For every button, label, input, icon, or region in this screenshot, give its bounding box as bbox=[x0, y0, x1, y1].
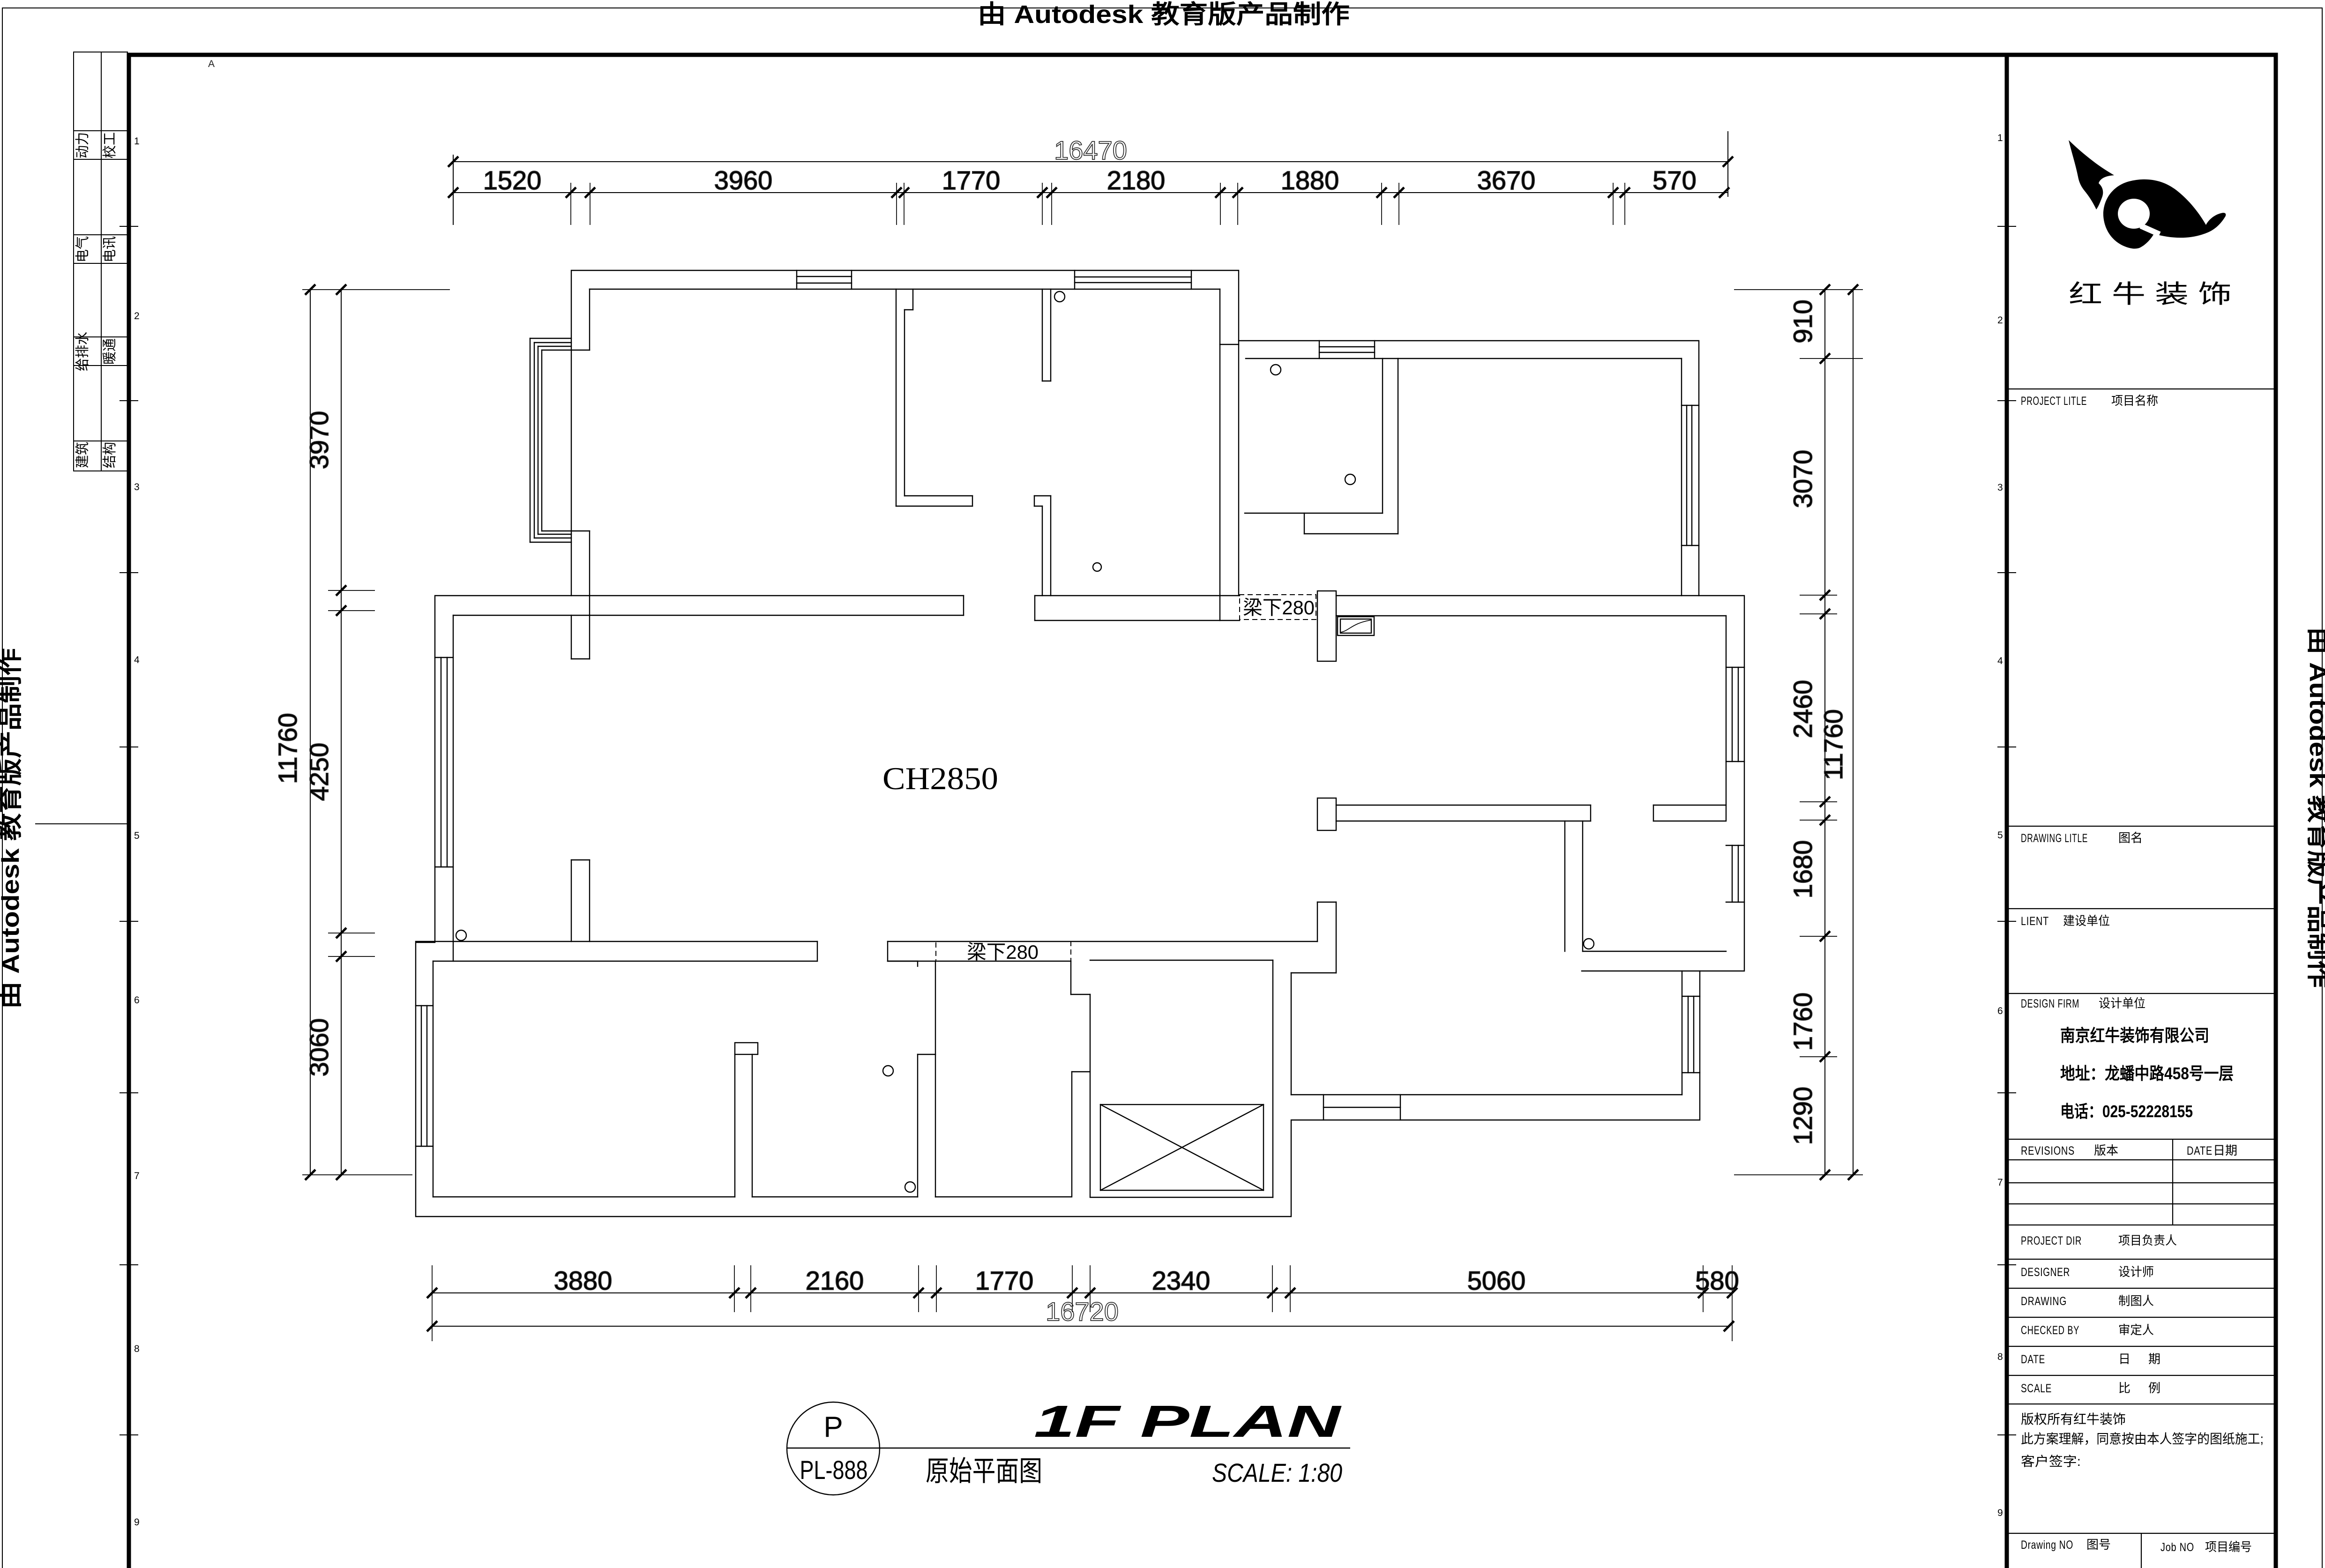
svg-text:2180: 2180 bbox=[1107, 165, 1166, 195]
svg-text:建设单位: 建设单位 bbox=[2063, 914, 2110, 928]
svg-text:制图人: 制图人 bbox=[2118, 1294, 2154, 1308]
svg-text:给排水: 给排水 bbox=[75, 332, 90, 371]
svg-text:审定人: 审定人 bbox=[2118, 1323, 2154, 1337]
svg-text:版本: 版本 bbox=[2094, 1143, 2118, 1157]
svg-text:5: 5 bbox=[1997, 830, 2003, 841]
svg-text:3070: 3070 bbox=[1788, 450, 1817, 508]
svg-text:Drawing NO: Drawing NO bbox=[2021, 1538, 2073, 1552]
svg-text:梁下280: 梁下280 bbox=[1243, 597, 1315, 619]
svg-text:PL-888: PL-888 bbox=[800, 1455, 868, 1485]
svg-text:3670: 3670 bbox=[1477, 165, 1536, 195]
svg-text:LIENT: LIENT bbox=[2021, 915, 2049, 928]
svg-text:910: 910 bbox=[1788, 299, 1817, 343]
svg-text:5: 5 bbox=[134, 830, 140, 841]
svg-text:580: 580 bbox=[1695, 1266, 1739, 1295]
svg-text:此方案理解，同意按由本人签字的图纸施工;: 此方案理解，同意按由本人签字的图纸施工; bbox=[2021, 1432, 2264, 1446]
svg-text:7: 7 bbox=[134, 1171, 140, 1181]
svg-text:电讯: 电讯 bbox=[102, 236, 118, 262]
svg-text:由 Autodesk 教育版产品制作: 由 Autodesk 教育版产品制作 bbox=[978, 0, 1350, 29]
svg-text:校工: 校工 bbox=[102, 132, 118, 158]
svg-text:1760: 1760 bbox=[1788, 993, 1817, 1051]
svg-text:图名: 图名 bbox=[2118, 831, 2143, 845]
svg-text:DRAWING: DRAWING bbox=[2021, 1295, 2067, 1308]
svg-text:1770: 1770 bbox=[942, 165, 1001, 195]
svg-text:建筑: 建筑 bbox=[75, 442, 90, 468]
svg-text:4: 4 bbox=[1997, 656, 2003, 666]
svg-text:日 期: 日 期 bbox=[2118, 1352, 2161, 1366]
svg-text:1880: 1880 bbox=[1281, 165, 1339, 195]
svg-text:1F PLAN: 1F PLAN bbox=[1034, 1396, 1342, 1447]
svg-text:DESIGN FIRM: DESIGN FIRM bbox=[2021, 997, 2079, 1010]
svg-text:DATE: DATE bbox=[2187, 1144, 2213, 1157]
svg-text:梁下280: 梁下280 bbox=[967, 941, 1039, 963]
svg-text:红 牛 装 饰: 红 牛 装 饰 bbox=[2069, 280, 2232, 308]
svg-text:SCALE: 1:80: SCALE: 1:80 bbox=[1212, 1458, 1342, 1487]
svg-text:11760: 11760 bbox=[1818, 709, 1848, 780]
svg-text:REVISIONS: REVISIONS bbox=[2021, 1144, 2075, 1157]
svg-text:Job NO: Job NO bbox=[2161, 1541, 2194, 1554]
svg-text:1770: 1770 bbox=[975, 1266, 1034, 1295]
svg-text:暖通: 暖通 bbox=[102, 338, 118, 365]
svg-text:9: 9 bbox=[1997, 1508, 2003, 1518]
svg-text:8: 8 bbox=[1997, 1351, 2003, 1362]
svg-text:3880: 3880 bbox=[554, 1266, 613, 1295]
svg-text:5060: 5060 bbox=[1467, 1266, 1526, 1295]
svg-text:电话：025-52228155: 电话：025-52228155 bbox=[2060, 1102, 2193, 1121]
svg-text:日期: 日期 bbox=[2213, 1143, 2237, 1157]
svg-text:设计单位: 设计单位 bbox=[2099, 996, 2146, 1010]
svg-text:地址：龙蟠中路458号一层: 地址：龙蟠中路458号一层 bbox=[2060, 1064, 2234, 1083]
svg-text:SCALE: SCALE bbox=[2021, 1382, 2052, 1395]
svg-text:项目编号: 项目编号 bbox=[2205, 1540, 2252, 1554]
svg-text:由 Autodesk 教育版产品制作: 由 Autodesk 教育版产品制作 bbox=[0, 648, 24, 1009]
svg-text:P: P bbox=[823, 1411, 843, 1443]
svg-text:3: 3 bbox=[134, 482, 140, 493]
svg-text:1520: 1520 bbox=[483, 165, 542, 195]
svg-text:2: 2 bbox=[1997, 315, 2003, 326]
svg-text:版权所有红牛装饰: 版权所有红牛装饰 bbox=[2021, 1412, 2126, 1426]
svg-text:PROJECT DIR: PROJECT DIR bbox=[2021, 1234, 2082, 1247]
svg-text:16720: 16720 bbox=[1046, 1297, 1119, 1326]
svg-text:项目名称: 项目名称 bbox=[2111, 394, 2158, 408]
svg-text:3970: 3970 bbox=[304, 411, 334, 470]
svg-text:动力: 动力 bbox=[75, 132, 90, 158]
svg-text:DRAWING LITLE: DRAWING LITLE bbox=[2021, 832, 2088, 845]
svg-text:2340: 2340 bbox=[1152, 1266, 1211, 1295]
svg-text:6: 6 bbox=[134, 995, 140, 1006]
svg-text:4250: 4250 bbox=[304, 743, 334, 801]
svg-text:4: 4 bbox=[134, 655, 140, 665]
svg-text:11760: 11760 bbox=[273, 713, 302, 784]
svg-text:2160: 2160 bbox=[806, 1266, 864, 1295]
svg-text:1: 1 bbox=[134, 136, 140, 147]
svg-text:2460: 2460 bbox=[1788, 680, 1817, 739]
svg-text:3: 3 bbox=[1997, 482, 2003, 493]
svg-text:设计师: 设计师 bbox=[2118, 1265, 2154, 1279]
svg-text:2: 2 bbox=[134, 311, 140, 321]
svg-text:DATE: DATE bbox=[2021, 1353, 2045, 1366]
svg-text:CH2850: CH2850 bbox=[882, 761, 998, 796]
svg-text:1: 1 bbox=[1997, 133, 2003, 143]
svg-text:1680: 1680 bbox=[1788, 840, 1817, 899]
svg-text:A: A bbox=[208, 59, 215, 69]
svg-text:项目负责人: 项目负责人 bbox=[2118, 1233, 2177, 1247]
svg-text:原始平面图: 原始平面图 bbox=[926, 1456, 1042, 1487]
svg-text:结构: 结构 bbox=[102, 442, 118, 468]
svg-text:比 例: 比 例 bbox=[2118, 1381, 2161, 1395]
svg-text:9: 9 bbox=[134, 1517, 140, 1528]
svg-text:7: 7 bbox=[1997, 1177, 2003, 1188]
svg-text:3060: 3060 bbox=[304, 1018, 334, 1077]
svg-text:8: 8 bbox=[134, 1344, 140, 1354]
svg-text:6: 6 bbox=[1997, 1006, 2003, 1016]
svg-text:1290: 1290 bbox=[1788, 1087, 1817, 1145]
svg-text:DESIGNER: DESIGNER bbox=[2021, 1266, 2070, 1279]
svg-text:电气: 电气 bbox=[75, 236, 90, 262]
svg-text:3960: 3960 bbox=[714, 165, 773, 195]
svg-text:16470: 16470 bbox=[1054, 135, 1127, 165]
svg-text:客户签字:: 客户签字: bbox=[2021, 1454, 2081, 1469]
svg-text:南京红牛装饰有限公司: 南京红牛装饰有限公司 bbox=[2060, 1026, 2209, 1045]
svg-text:由 Autodesk 教育版产品制作: 由 Autodesk 教育版产品制作 bbox=[2304, 627, 2325, 988]
svg-text:570: 570 bbox=[1652, 165, 1696, 195]
svg-text:PROJECT LITLE: PROJECT LITLE bbox=[2021, 395, 2087, 408]
svg-text:图号: 图号 bbox=[2086, 1538, 2111, 1552]
svg-text:CHECKED BY: CHECKED BY bbox=[2021, 1324, 2079, 1337]
